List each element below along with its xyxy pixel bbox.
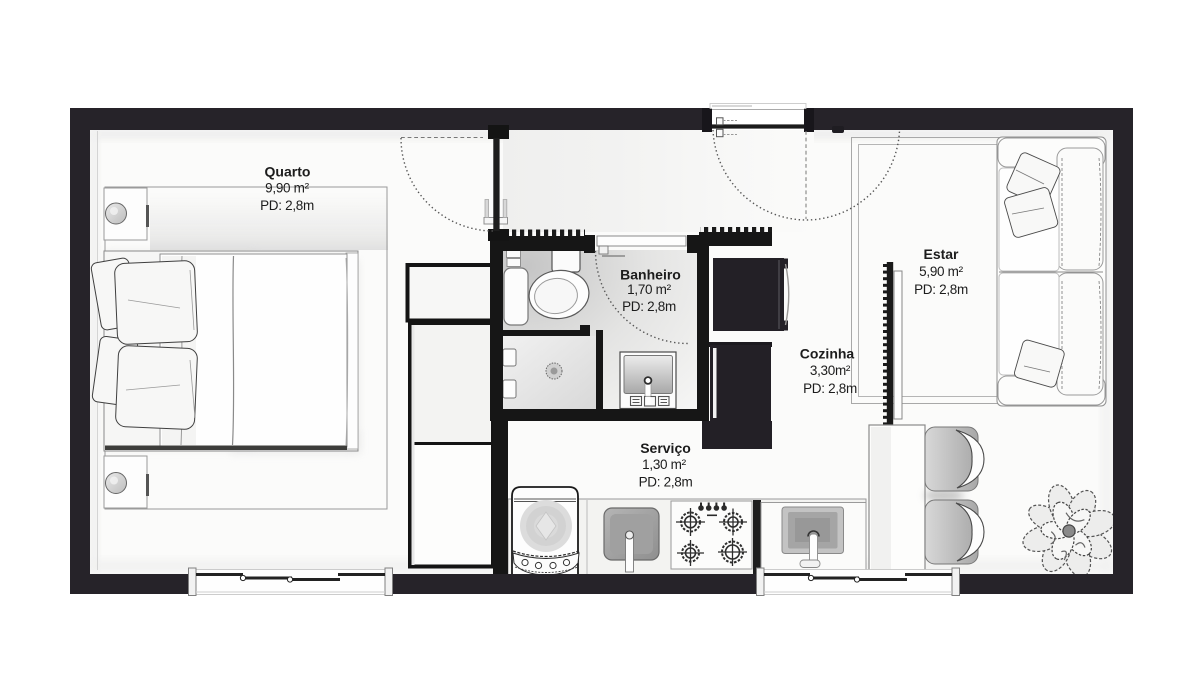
svg-text:Serviço: Serviço (640, 440, 691, 456)
svg-text:PD: 2,8m: PD: 2,8m (622, 299, 676, 314)
svg-text:1,70 m²: 1,70 m² (627, 282, 671, 297)
svg-text:PD: 2,8m: PD: 2,8m (639, 475, 693, 490)
svg-text:5,90 m²: 5,90 m² (919, 264, 963, 279)
svg-text:PD: 2,8m: PD: 2,8m (914, 282, 968, 297)
svg-text:PD: 2,8m: PD: 2,8m (803, 381, 857, 396)
svg-text:Cozinha: Cozinha (800, 346, 855, 362)
svg-text:Estar: Estar (923, 246, 959, 262)
svg-text:PD: 2,8m: PD: 2,8m (260, 198, 314, 213)
svg-text:9,90 m²: 9,90 m² (265, 181, 309, 196)
svg-text:1,30 m²: 1,30 m² (642, 457, 686, 472)
svg-text:Banheiro: Banheiro (620, 267, 681, 283)
svg-text:3,30m²: 3,30m² (810, 363, 851, 378)
svg-text:Quarto: Quarto (265, 164, 311, 180)
